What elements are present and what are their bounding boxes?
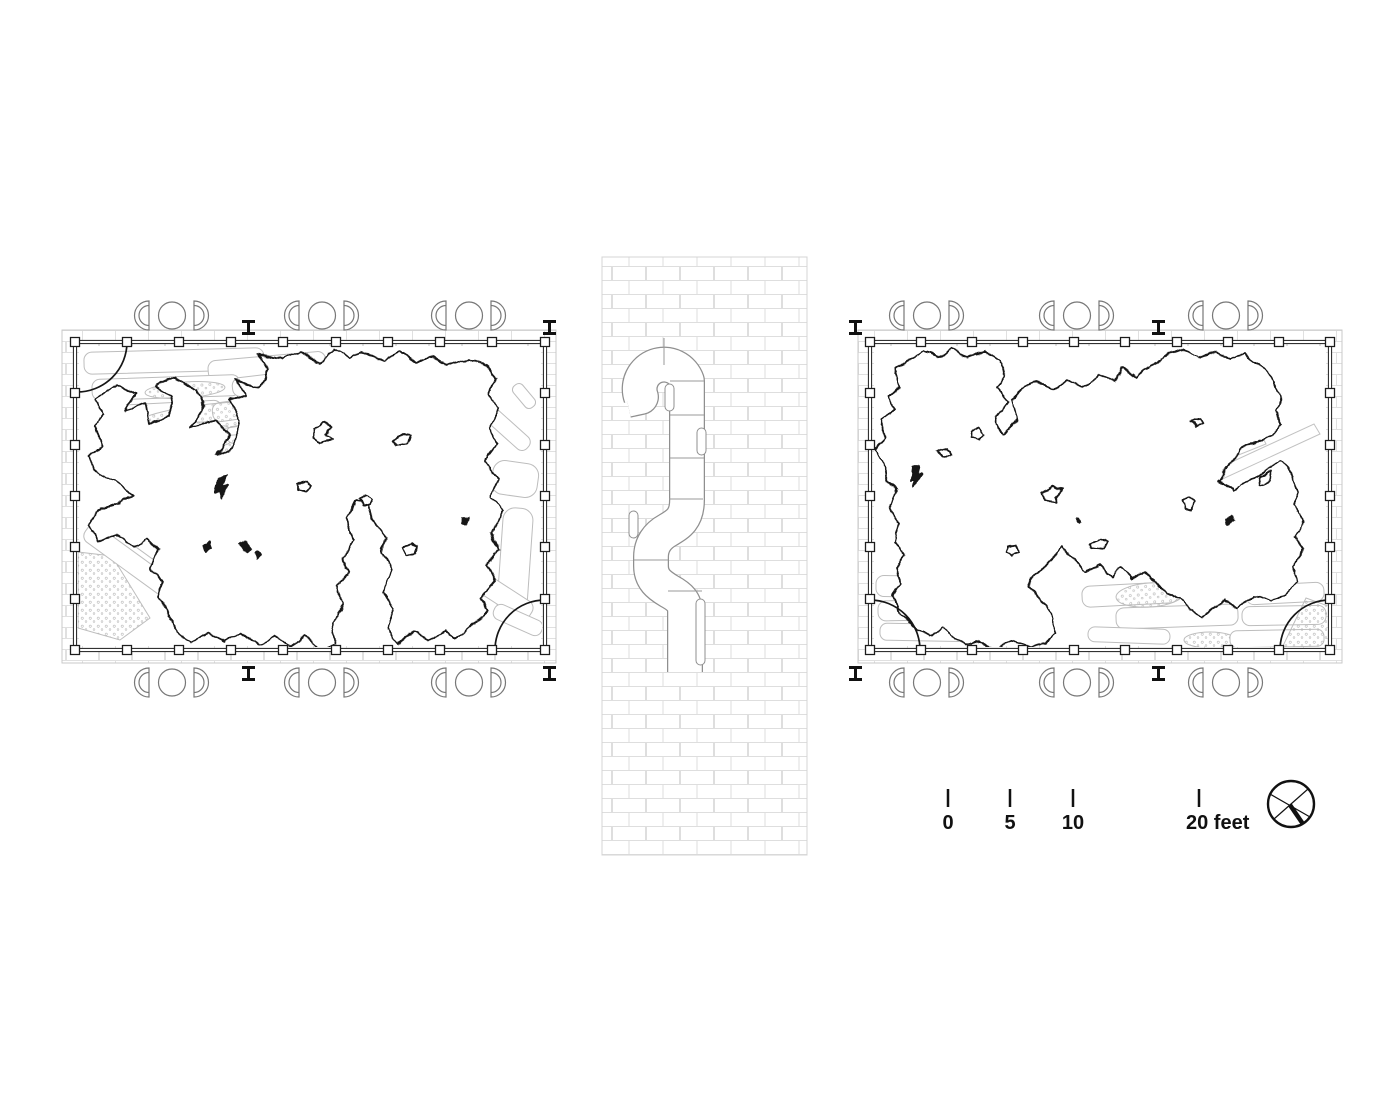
seating-group [1189, 301, 1263, 330]
steel-beam-marker-icon [242, 666, 255, 681]
seating-group [285, 668, 359, 697]
drawing-sheet: 0 5 10 20 feet [0, 0, 1400, 1120]
north-arrow-icon [1268, 781, 1314, 827]
steel-beam-marker-icon [242, 320, 255, 335]
brick-wall-elevation [602, 257, 807, 855]
floor-plan-left [62, 301, 556, 697]
scale-label-0: 0 [942, 812, 953, 834]
steel-beam-marker-icon [1152, 320, 1165, 335]
steel-beam-marker-icon [543, 320, 556, 335]
scale-bar: 0 5 10 20 feet [942, 789, 1249, 834]
scale-label-10: 10 [1062, 812, 1084, 834]
steel-beam-marker-icon [1152, 666, 1165, 681]
seating-group [285, 301, 359, 330]
seating-group [432, 301, 506, 330]
seating-group [890, 301, 964, 330]
steel-beam-marker-icon [543, 666, 556, 681]
steel-beam-marker-icon [849, 666, 862, 681]
seating-group [890, 668, 964, 697]
serpentine-wall-section [602, 257, 807, 855]
scale-label-5: 5 [1004, 812, 1015, 834]
seating-group [135, 301, 209, 330]
steel-beam-marker-icon [849, 320, 862, 335]
seating-group [135, 668, 209, 697]
seating-group [432, 668, 506, 697]
scale-label-20-feet: 20 feet [1186, 812, 1250, 834]
floor-plan-right [849, 301, 1342, 697]
seating-group [1040, 668, 1114, 697]
seating-group [1040, 301, 1114, 330]
plan-drawing-svg: 0 5 10 20 feet [0, 0, 1400, 1120]
scale-bar-ticks [948, 789, 1199, 807]
seating-group [1189, 668, 1263, 697]
